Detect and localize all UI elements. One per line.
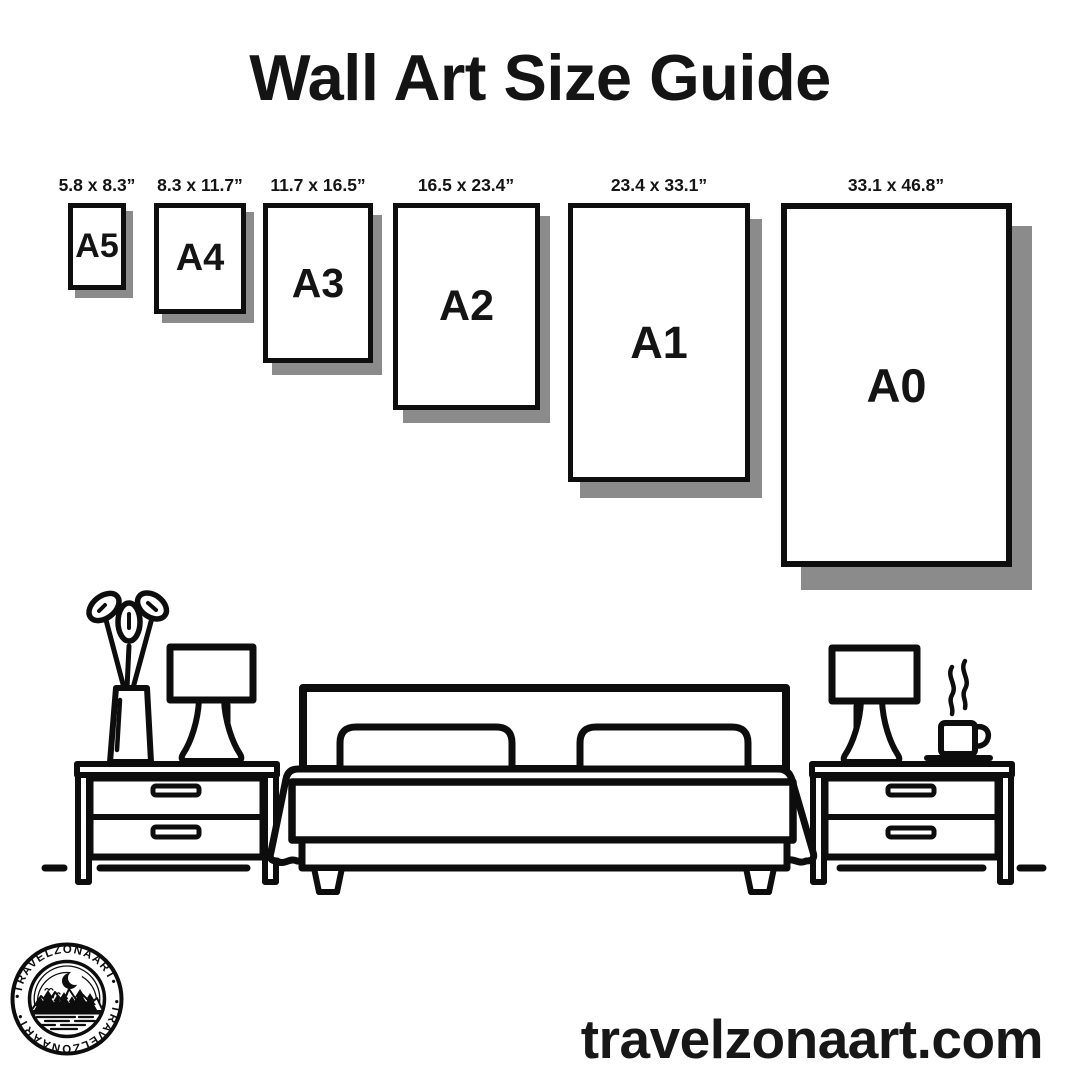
bed-foot <box>314 868 342 892</box>
drawer-handle-icon <box>888 786 934 795</box>
nightstand-icon-right <box>812 764 1012 882</box>
size-guide-poster: Wall Art Size Guide 5.8 x 8.3” 8.3 x 11.… <box>0 0 1080 1080</box>
table-lamp-icon-left <box>170 647 253 761</box>
table-lamp-icon-right <box>832 648 917 762</box>
website-url: travelzonaart.com <box>581 1007 1043 1071</box>
bed-icon <box>270 688 813 892</box>
pillow-icon <box>340 727 512 769</box>
bed-foot <box>746 868 774 892</box>
bed-base <box>302 840 787 868</box>
coffee-cup-icon <box>927 661 990 758</box>
coffee-steam-icon <box>950 661 966 714</box>
drawer-handle-icon <box>153 786 199 795</box>
plant-vase-icon <box>84 588 172 762</box>
pillow-icon <box>580 727 748 769</box>
bedroom-illustration <box>0 0 1080 1080</box>
drawer-handle-icon <box>888 828 934 837</box>
nightstand-icon-left <box>77 764 277 882</box>
mattress-front <box>292 782 793 840</box>
drawer-handle-icon <box>153 827 199 837</box>
brand-logo-badge: •TRAVELZONAART• •TRAVELZONAART• <box>6 938 128 1060</box>
